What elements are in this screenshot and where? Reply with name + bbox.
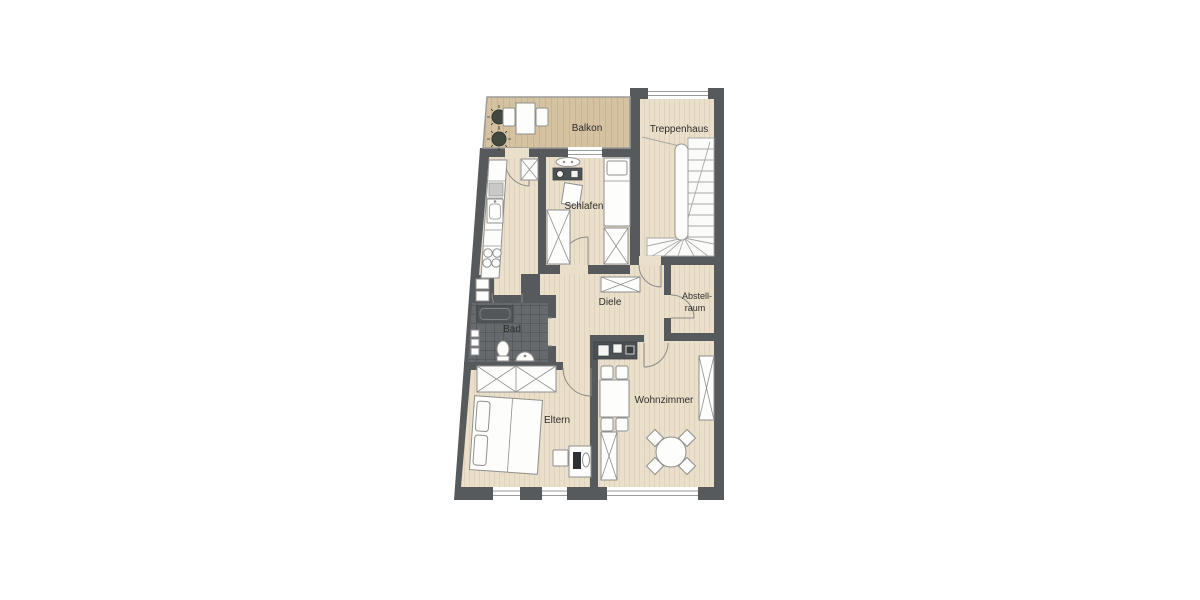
side-table (553, 450, 568, 466)
room-label-diele: Diele (599, 297, 622, 308)
radiator (471, 330, 479, 355)
shelf-unit (556, 158, 580, 167)
balcony-table (516, 103, 535, 134)
pillow (475, 401, 490, 432)
room-label-schlafen: Schlafen (565, 201, 604, 212)
wardrobe (699, 356, 714, 420)
wardrobe (601, 432, 617, 480)
window (542, 487, 567, 500)
hall-cabinet (601, 277, 640, 292)
desk (569, 446, 591, 477)
room-label-wohnzimmer: Wohnzimmer (635, 395, 694, 406)
room-label-eltern: Eltern (544, 415, 570, 426)
kitchen-appliance (489, 183, 503, 196)
pillow (607, 161, 627, 175)
room-bad: Bad (468, 303, 548, 362)
window (493, 487, 520, 500)
floor-plan-drawing: Balkon Treppenhaus (0, 0, 1200, 600)
wardrobe (477, 366, 556, 392)
wardrobe (604, 228, 628, 264)
toilet-icon (497, 341, 509, 361)
bed-single (604, 158, 630, 226)
room-treppenhaus: Treppenhaus (640, 88, 714, 256)
stair-newel (675, 144, 688, 240)
desk-chair (583, 453, 590, 467)
pillow (473, 435, 488, 466)
floor-plan-page: Balkon Treppenhaus (0, 0, 1200, 600)
room-label-abstellraum-1: Abstell- (682, 291, 712, 301)
bed-double (470, 396, 543, 475)
balcony-chair (503, 108, 515, 126)
window (607, 487, 698, 500)
room-label-bad: Bad (503, 324, 521, 335)
room-label-abstellraum-2: raum (685, 303, 706, 313)
kitchen-sink (487, 199, 503, 223)
window (568, 147, 602, 158)
room-label-balkon: Balkon (572, 123, 603, 134)
tall-cabinet (521, 159, 538, 180)
laptop-icon (573, 452, 581, 469)
room-balkon: Balkon (483, 97, 630, 151)
washing-machine (553, 168, 582, 180)
entrance-door-gap (639, 256, 661, 266)
room-label-treppenhaus: Treppenhaus (650, 124, 709, 135)
bathtub (477, 306, 513, 322)
tv-sideboard (594, 342, 637, 359)
balcony-chair (536, 108, 548, 126)
wardrobe (547, 210, 570, 264)
window (648, 88, 708, 99)
balcony-door-gap (505, 148, 529, 158)
